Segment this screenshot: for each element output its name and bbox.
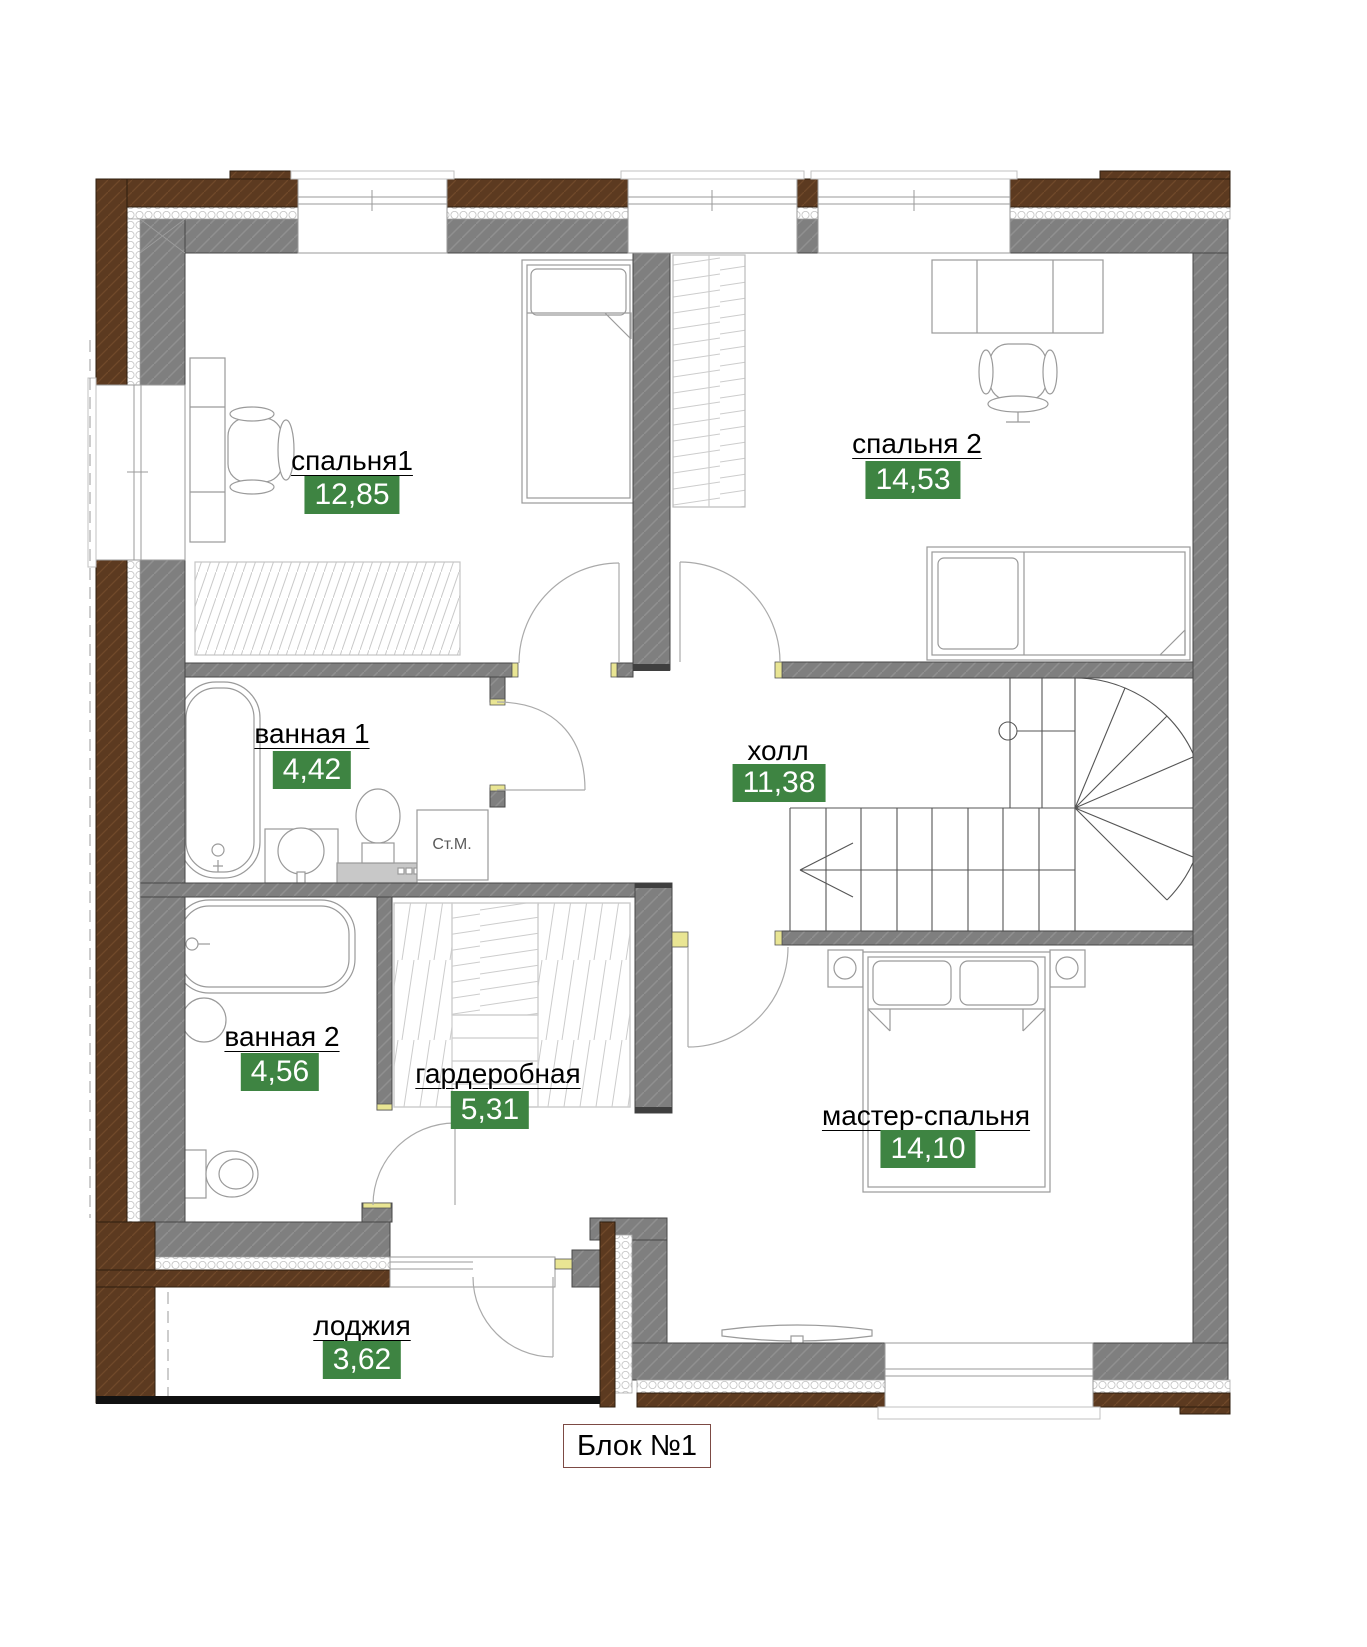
bedroom1-desk bbox=[190, 358, 225, 542]
area-badge-loggia: 3,62 bbox=[323, 1341, 401, 1379]
bedroom2-desk bbox=[932, 260, 1103, 333]
room-label-loggia: лоджия bbox=[313, 1312, 410, 1340]
room-label-bathroom1: ванная 1 bbox=[254, 720, 369, 748]
window-balcony bbox=[390, 1257, 555, 1287]
bedroom1-bed bbox=[522, 260, 635, 503]
bathroom1-sink bbox=[265, 828, 338, 883]
washing-machine-label: Ст.М. bbox=[432, 836, 471, 854]
area-badge-master-bedroom: 14,10 bbox=[880, 1130, 975, 1168]
loggia-glazing-front bbox=[96, 1396, 600, 1404]
master-nightstand-left bbox=[828, 950, 863, 987]
bedroom2-bed bbox=[927, 547, 1190, 660]
room-label-master-bedroom: мастер-спальня bbox=[822, 1102, 1030, 1130]
room-label-wardrobe: гардеробная bbox=[415, 1060, 580, 1088]
floor-plan-drawing bbox=[0, 0, 1367, 1647]
area-badge-bedroom1: 12,85 bbox=[304, 476, 399, 514]
area-badge-bedroom2: 14,53 bbox=[865, 461, 960, 499]
area-badge-bathroom2: 4,56 bbox=[241, 1053, 319, 1091]
bathroom2-bathtub bbox=[175, 900, 355, 993]
block-number-badge: Блок №1 bbox=[563, 1424, 711, 1468]
window-master-bottom bbox=[878, 1343, 1100, 1419]
window-top-2 bbox=[621, 171, 804, 253]
floor-plan-page: спальня1 12,85 спальня 2 14,53 ванная 1 … bbox=[0, 0, 1367, 1647]
room-label-hall: холл bbox=[747, 737, 808, 765]
bedroom2-closet bbox=[673, 255, 745, 507]
bedroom1-rug bbox=[195, 562, 460, 655]
room-label-bedroom2: спальня 2 bbox=[852, 430, 982, 458]
area-badge-hall: 11,38 bbox=[733, 764, 826, 802]
room-label-bathroom2: ванная 2 bbox=[224, 1023, 339, 1051]
master-nightstand-right bbox=[1050, 950, 1085, 987]
bathroom1-bathtub bbox=[180, 682, 260, 878]
area-badge-bathroom1: 4,42 bbox=[273, 751, 351, 789]
window-left bbox=[88, 378, 185, 567]
window-top-3 bbox=[811, 171, 1017, 253]
area-badge-wardrobe: 5,31 bbox=[451, 1091, 529, 1129]
window-top-1 bbox=[291, 171, 454, 253]
room-label-bedroom1: спальня1 bbox=[291, 447, 413, 475]
